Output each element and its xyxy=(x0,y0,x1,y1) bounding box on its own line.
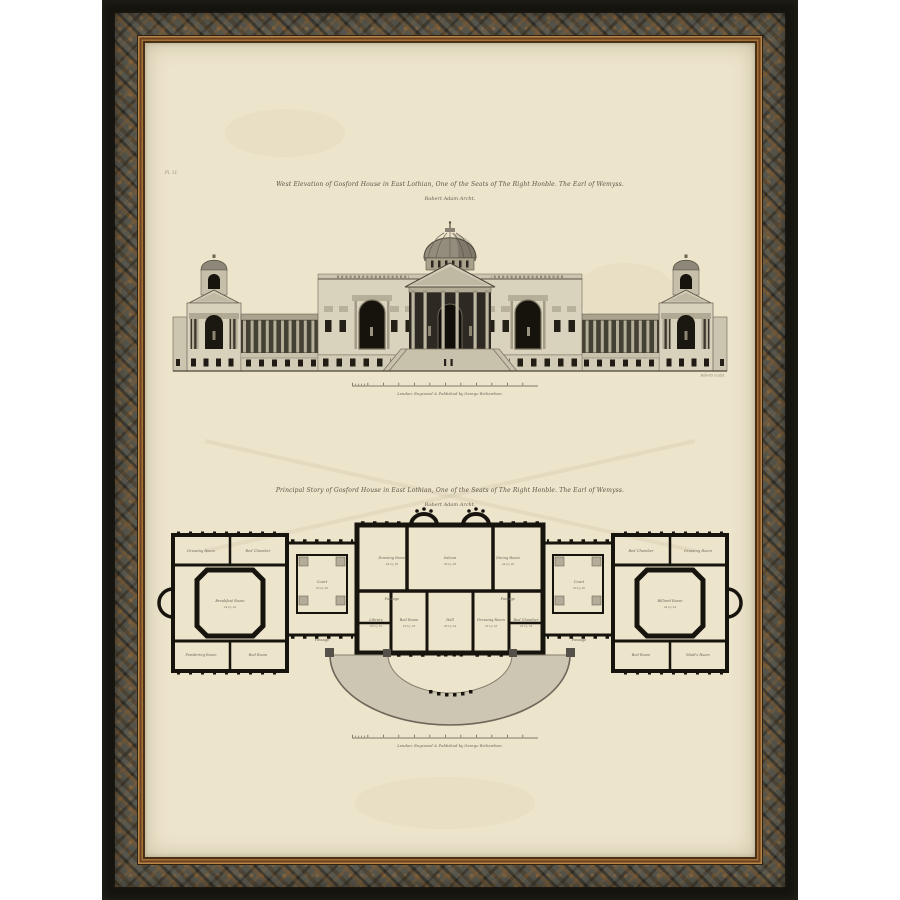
room-dimension: 44 by 28 xyxy=(501,562,514,566)
elevation-architect-credit: Robert Adam Archt. xyxy=(424,196,476,202)
room-label: Hall xyxy=(445,618,454,622)
room-label: Library xyxy=(368,618,383,622)
room-dimension: 24 by 24 xyxy=(223,605,236,609)
room-label: Saloon xyxy=(444,556,457,560)
plan-imprint: London: Engraved & Published by George R… xyxy=(396,743,502,748)
room-label: Bed Room xyxy=(248,653,268,657)
engraver-credit: Roberts sculpt. xyxy=(699,374,725,378)
room-label: Dining Room xyxy=(495,556,520,560)
plan-caption: Principal Story of Gosford House in East… xyxy=(275,487,624,494)
picture-frame: Pl. 11. West Elevation of Gosford House … xyxy=(102,0,798,900)
room-label: Passage xyxy=(500,597,516,601)
room-label: Bed Chamber xyxy=(513,618,539,622)
room-label: Breakfast Room xyxy=(214,599,245,603)
room-label: Dressing Room xyxy=(683,549,712,553)
room-label: Passage xyxy=(314,638,330,642)
room-label: Drawing Room xyxy=(377,556,406,560)
room-label: Powdering Room xyxy=(184,653,217,657)
room-dimension: 20 by 20 xyxy=(572,586,585,590)
room-label: Court xyxy=(317,580,328,584)
framed-print-photo: Pl. 11. West Elevation of Gosford House … xyxy=(0,0,900,900)
room-label: Bed Room xyxy=(399,618,419,622)
plan-scale-bar xyxy=(352,736,538,738)
room-dimension: 36 by 24 xyxy=(444,624,456,628)
room-label: Dressing Room xyxy=(476,618,505,622)
carriage-sweep xyxy=(325,648,575,725)
room-label: Court xyxy=(574,580,585,584)
room-dimension: 22 by 18 xyxy=(484,624,497,628)
plan-architect-credit: Robert Adam Archt. xyxy=(424,502,476,508)
room-label: Bed Room xyxy=(631,653,651,657)
room-dimension: 24 by 24 xyxy=(663,605,676,609)
room-dimension: 22 by 18 xyxy=(402,624,415,628)
room-dimension: 44 by 28 xyxy=(385,562,398,566)
frame-gold-fillet: Pl. 11. West Elevation of Gosford House … xyxy=(137,35,763,865)
elevation-caption: West Elevation of Gosford House in East … xyxy=(276,181,624,188)
elevation-imprint: London: Engraved & Published by George R… xyxy=(396,391,502,396)
room-dimension: 36 by 28 xyxy=(444,562,456,566)
room-label: Bed Chamber xyxy=(245,549,271,553)
engraving: Pl. 11. West Elevation of Gosford House … xyxy=(145,43,755,857)
room-label: Billiard Room xyxy=(657,599,684,603)
plate-mark: Pl. 11. xyxy=(164,170,178,175)
room-label: Bed Chamber xyxy=(628,549,654,553)
room-dimension: 30 by 22 xyxy=(370,624,382,628)
room-dimension: 20 by 20 xyxy=(315,586,328,590)
room-label: Maid's Room xyxy=(685,653,710,657)
room-label: Passage xyxy=(571,638,587,642)
frame-ornate-band: Pl. 11. West Elevation of Gosford House … xyxy=(114,12,786,888)
room-label: Passage xyxy=(384,597,400,601)
room-label: Dressing Room xyxy=(186,549,215,553)
elevation-scale-bar xyxy=(352,384,538,386)
room-dimension: 22 by 18 xyxy=(519,624,532,628)
print-paper: Pl. 11. West Elevation of Gosford House … xyxy=(145,43,755,857)
